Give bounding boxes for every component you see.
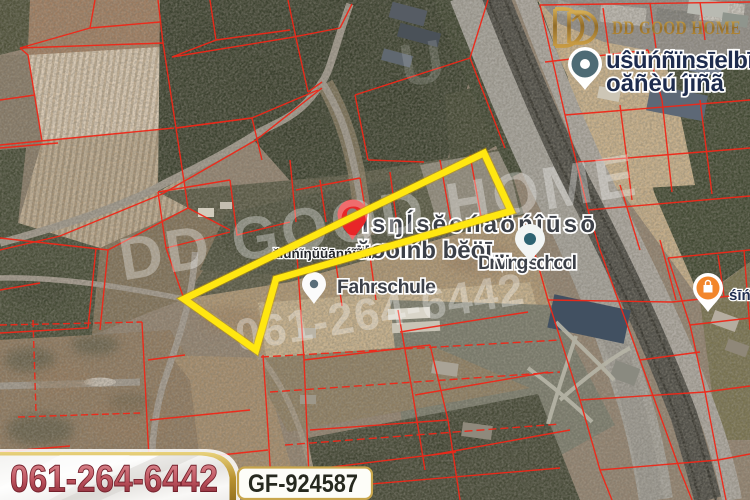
svg-text:GF-924587: GF-924587 — [248, 470, 358, 498]
svg-text:śīń: śīń — [729, 287, 750, 304]
svg-text:DD GOOD HOME: DD GOOD HOME — [612, 19, 741, 39]
svg-text:061-264-6442: 061-264-6442 — [10, 459, 218, 500]
svg-text:oăñèú ĵïñã: oăñèú ĵïñã — [606, 70, 725, 97]
